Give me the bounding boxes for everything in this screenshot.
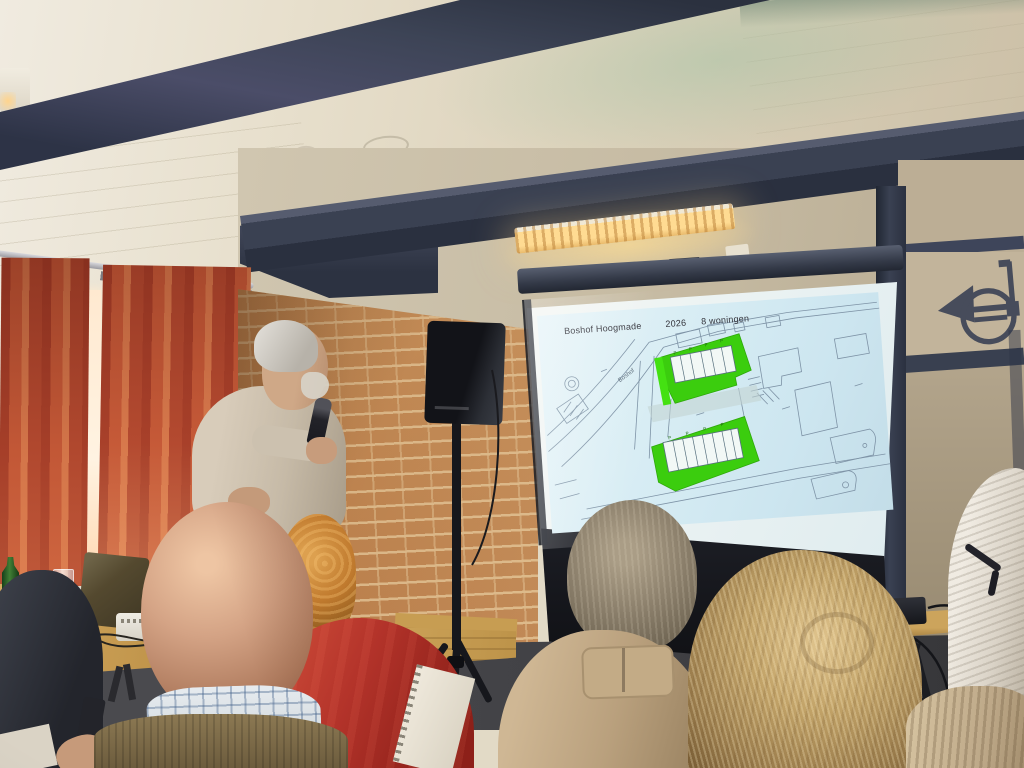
jacket-collar [581,644,675,699]
hair-crown-swirl [800,612,874,674]
knit-sweater-shoulder [906,686,1024,768]
meeting-room-photo: P P P P P P P P Boshof Boshof Hoogmade20… [0,0,1024,768]
audience-member-gray-hair [567,500,697,652]
olive-sweater-shoulders [94,714,348,768]
presenter-hair [254,320,318,372]
collar-seam [622,648,625,692]
presenter-mic-hand [306,437,337,464]
